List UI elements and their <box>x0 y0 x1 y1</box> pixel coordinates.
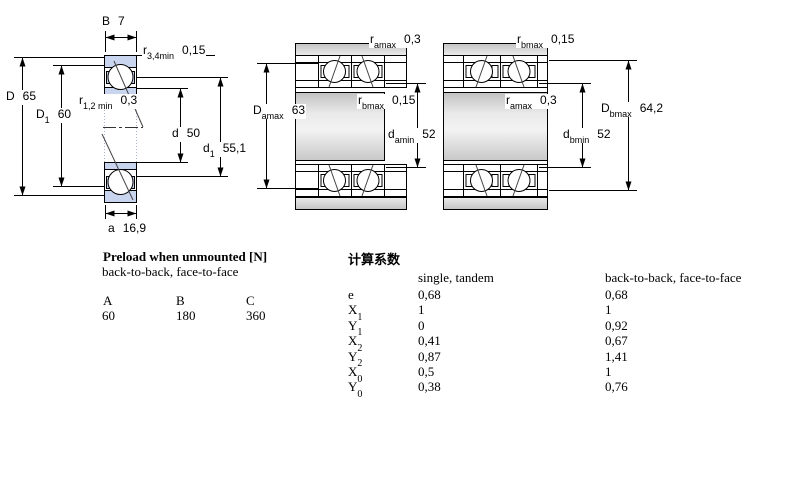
factor-value-pair: 0,76 <box>605 380 775 395</box>
dim-label-Dbmax: Dbmax64,2 <box>600 102 664 117</box>
preload-value: 60 <box>102 309 176 324</box>
dim-label-ramax-top: ramax0,3 <box>369 33 422 48</box>
dim-value: 0,3 <box>121 93 138 107</box>
factor-symbol: X1 <box>348 303 418 318</box>
dim-symbol: D <box>36 107 45 121</box>
right-dimension-lines <box>583 61 629 191</box>
dim-subscript: bmax <box>610 109 632 119</box>
factor-value-pair: 0,67 <box>605 334 775 349</box>
bearing-datasheet-page: B7 r3,4min0,15 D65 D160 r1,2 min0,3 d50 … <box>0 0 800 500</box>
factor-value-pair: 1 <box>605 303 775 318</box>
factor-value-single: 0,87 <box>418 350 605 365</box>
dim-value: 0,3 <box>540 93 557 107</box>
factor-value-single: 1 <box>418 303 605 318</box>
dim-subscript: amax <box>262 111 284 121</box>
dim-label-ramax-mid: ramax0,3 <box>505 94 558 109</box>
dim-value: 55,1 <box>223 141 246 155</box>
preload-table-title: Preload when unmounted [N] <box>103 249 267 265</box>
preload-col-header: C <box>246 294 306 309</box>
dim-value: 16,9 <box>123 221 146 235</box>
dim-value: 65 <box>23 89 36 103</box>
dim-value: 0,15 <box>182 43 205 57</box>
factor-value-pair: 1 <box>605 365 775 380</box>
dim-subscript: bmax <box>521 40 543 50</box>
factors-col-pair-header: back-to-back, face-to-face <box>605 270 741 286</box>
dim-label-rbmax-top: rbmax0,15 <box>516 33 575 48</box>
preload-value: 360 <box>246 309 306 324</box>
dim-value: 0,15 <box>392 93 415 107</box>
dim-label-D1: D160 <box>35 108 72 123</box>
dim-value: 50 <box>187 126 200 140</box>
dim-label-rbmax-mid: rbmax0,15 <box>357 94 416 109</box>
dim-label-damin: damin52 <box>387 128 437 143</box>
factor-value-single: 0,41 <box>418 334 605 349</box>
preload-col-header: A <box>102 294 176 309</box>
dim-label-d1: d155,1 <box>202 142 247 157</box>
dim-subscript: bmin <box>570 135 590 145</box>
housing-bottom <box>296 198 407 210</box>
preload-table: A B C 60 180 360 <box>102 294 306 323</box>
dim-value: 52 <box>597 127 610 141</box>
dim-symbol: d <box>172 126 179 140</box>
dim-subscript: 3,4min <box>147 51 174 61</box>
dim-value: 63 <box>292 103 305 117</box>
factor-value-pair: 0,68 <box>605 288 775 303</box>
preload-value: 180 <box>176 309 246 324</box>
factor-value-single: 0,38 <box>418 380 605 395</box>
factor-value-pair: 1,41 <box>605 350 775 365</box>
dim-label-d: d50 <box>171 127 201 142</box>
factor-value-pair: 0,92 <box>605 319 775 334</box>
dim-label-Damax: Damax63 <box>252 104 306 119</box>
dim-value: 52 <box>422 127 435 141</box>
right-extension-lines <box>539 61 637 191</box>
dim-subscript: amax <box>510 101 532 111</box>
factors-table: e 0,68 0,68 X1 1 1 Y1 0 0,92 X2 0,41 0,6… <box>348 288 775 396</box>
dim-label-r12min: r1,2 min0,3 <box>78 94 138 109</box>
dim-subscript: 1 <box>210 149 215 159</box>
dim-label-dbmin: dbmin52 <box>562 128 612 143</box>
dim-value: 0,15 <box>551 32 574 46</box>
dim-label-r34min: r3,4min0,15 <box>142 44 206 59</box>
dim-value: 60 <box>58 107 71 121</box>
dim-symbol: D <box>6 89 15 103</box>
dim-subscript: 1 <box>45 115 50 125</box>
dim-subscript: amax <box>374 40 396 50</box>
factors-table-title: 计算系数 <box>348 249 400 268</box>
dim-symbol: D <box>253 103 262 117</box>
factor-value-single: 0 <box>418 319 605 334</box>
dim-symbol: B <box>102 14 110 28</box>
paired-bearings-arrangement-a <box>257 43 426 210</box>
factor-symbol: e <box>348 288 418 303</box>
dim-subscript: amin <box>395 135 415 145</box>
preload-table-subtitle: back-to-back, face-to-face <box>102 264 238 280</box>
dim-symbol: D <box>601 101 610 115</box>
factors-col-single-header: single, tandem <box>418 270 494 286</box>
dim-value: 0,3 <box>404 32 421 46</box>
inner-ring <box>105 163 137 170</box>
housing-bottom <box>444 198 548 210</box>
factor-value-single: 0,68 <box>418 288 605 303</box>
factor-value-single: 0,5 <box>418 365 605 380</box>
dim-value: 7 <box>118 14 125 28</box>
dim-symbol: d <box>388 127 395 141</box>
dim-label-D: D65 <box>5 90 37 105</box>
dim-subscript: 1,2 min <box>83 101 113 111</box>
preload-col-header: B <box>176 294 246 309</box>
dim-subscript: bmax <box>362 101 384 111</box>
dim-symbol: a <box>108 221 115 235</box>
dim-label-a: a16,9 <box>107 222 147 237</box>
dim-value: 64,2 <box>640 101 663 115</box>
dim-label-B: B7 <box>101 15 126 30</box>
dim-symbol: d <box>203 141 210 155</box>
dim-symbol: d <box>563 127 570 141</box>
